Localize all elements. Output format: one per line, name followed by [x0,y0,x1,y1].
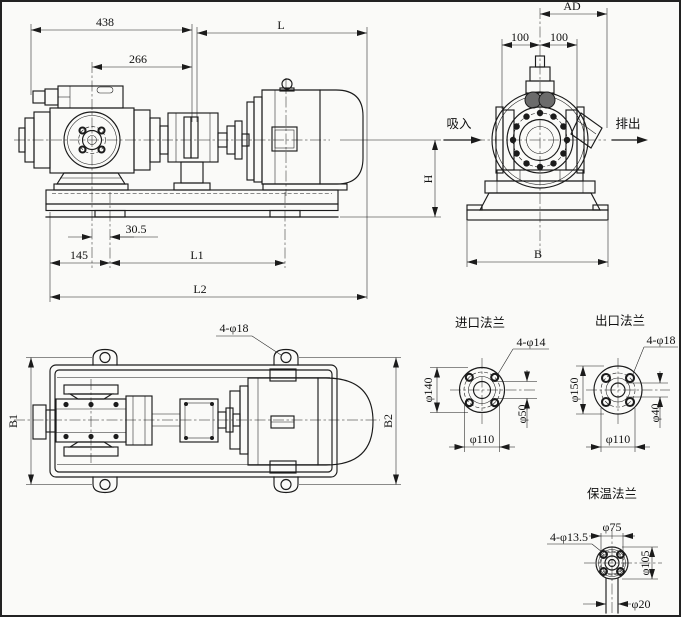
dim-AD: AD [563,0,581,13]
baseplate-side [46,190,338,217]
outlet-dim-bore: φ40 [648,404,662,423]
outlet-dim-od: φ150 [567,378,581,403]
dim-30-5: 30.5 [126,222,147,236]
motor-plan [230,369,373,473]
pump-plan [33,385,240,456]
callout-mount-holes: 4-φ18 [220,321,249,335]
dim-266: 266 [129,52,147,66]
side-view: 438 266 L H 30.5 145 L1 L2 [14,15,441,302]
pump-dimension-drawing: 438 266 L H 30.5 145 L1 L2 [0,0,681,617]
flange-inlet: 进口法兰 4-φ14 φ140 φ50 φ110 [421,315,549,452]
inlet-flange-title: 进口法兰 [455,315,505,330]
inlet-dim-bolt-circle: φ110 [470,432,494,446]
plan-view: 4-φ18 B1 B2 [6,321,401,493]
insulation-bolt-callout: 4-φ13.5 [550,530,588,544]
flange-insulation: 保温法兰 φ75 4-φ13.5 φ105 φ20 [547,486,662,617]
dim-145: 145 [70,248,88,262]
inlet-bolt-callout: 4-φ14 [517,335,546,349]
guard-screws [184,402,214,440]
outlet-dim-bolt-circle: φ110 [606,432,630,446]
suction-label: 吸入 [446,116,472,131]
flange-outlet: 出口法兰 4-φ18 φ150 φ40 φ110 [567,313,678,452]
pump-side [19,86,249,190]
pump-end [492,56,602,188]
insulation-dim-pipe: φ20 [632,597,651,611]
dim-100-right: 100 [550,30,568,44]
suction-arrow [471,136,482,143]
motor-side [247,79,363,190]
outlet-flange-title: 出口法兰 [595,313,645,328]
end-dimensions: AD 100 100 B 吸入 排出 [444,0,648,267]
insulation-dim-face: φ75 [603,520,622,534]
end-view: AD 100 100 B 吸入 排出 [444,0,648,267]
dim-B1: B1 [6,414,20,428]
discharge-arrow [637,136,648,143]
discharge-label: 排出 [615,116,640,131]
insulation-flange-title: 保温法兰 [587,486,637,501]
dim-H: H [421,174,435,183]
suction-flow: 吸入 [444,116,482,144]
dim-B: B [534,247,542,261]
dim-100-left: 100 [511,30,529,44]
drawing-sheet: 438 266 L H 30.5 145 L1 L2 [0,0,681,617]
dim-L1: L1 [190,248,203,262]
inlet-dim-bore: φ50 [515,405,529,424]
discharge-flow: 排出 [612,116,648,144]
dim-B2: B2 [381,414,395,428]
insulation-dim-od: φ105 [638,551,652,576]
dim-L2: L2 [193,282,206,296]
outlet-bolt-callout: 4-φ18 [647,333,676,347]
dim-L: L [277,18,284,32]
pedestal-end [467,170,608,220]
dim-438: 438 [96,15,114,29]
inlet-dim-od: φ140 [421,378,435,403]
